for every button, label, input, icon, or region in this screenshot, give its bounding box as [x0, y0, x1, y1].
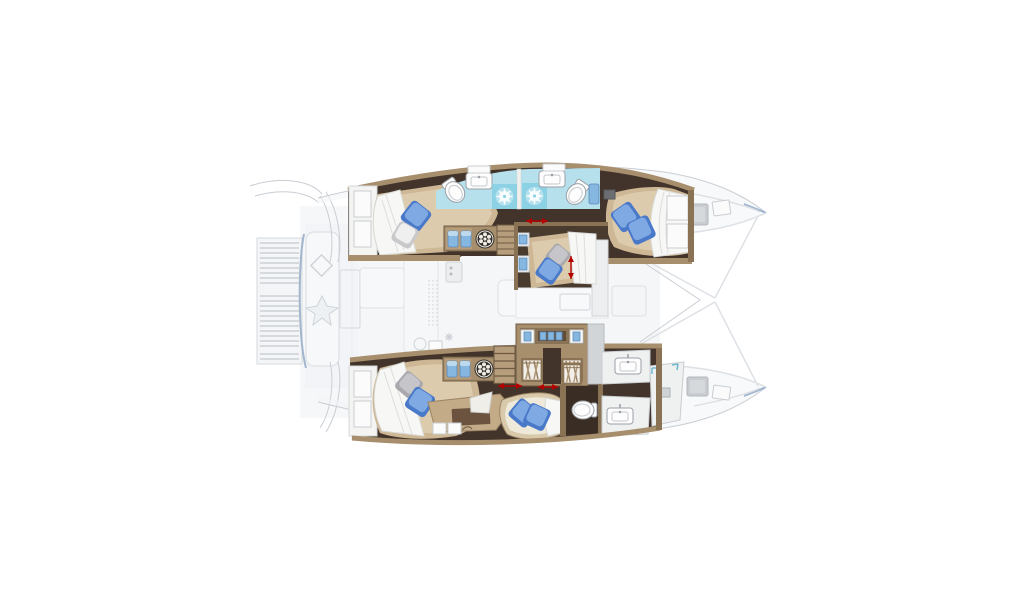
port-companionway-stairs — [494, 346, 515, 384]
towel-icon — [447, 361, 457, 377]
davit-arm — [250, 180, 322, 202]
towel-icon — [460, 361, 470, 377]
shower-drain — [661, 388, 670, 397]
washing-machine-icon — [475, 360, 494, 379]
towel-icon — [448, 231, 458, 247]
drawer — [448, 423, 461, 434]
hanging-locker-icon — [521, 358, 543, 382]
shower-icon — [526, 187, 544, 205]
shower-icon — [496, 188, 514, 206]
blue-locker — [589, 184, 599, 204]
starboard-forward-cabin — [604, 187, 690, 257]
starboard-transom-shelves — [349, 186, 377, 256]
stern-platform — [257, 234, 306, 368]
shelf-item — [524, 332, 531, 341]
hanging-locker-icon — [562, 363, 582, 385]
washing-machine-icon — [476, 230, 495, 249]
port-lounge-berth — [500, 393, 561, 440]
cockpit-bench — [306, 232, 339, 366]
hull-window — [604, 190, 615, 199]
port-utility-cabinet — [443, 357, 497, 381]
center-forward-cabin — [514, 222, 608, 318]
fwd-shelf — [667, 196, 688, 220]
towel-icon — [461, 231, 471, 247]
shelf-item — [519, 235, 527, 244]
fwd-shelf — [667, 224, 688, 248]
floorplan-canvas — [0, 0, 1024, 600]
toilet-icon — [572, 401, 597, 419]
shelf-item — [519, 258, 527, 270]
center-cabin-bed — [527, 232, 596, 288]
catamaran-floorplan — [0, 0, 1024, 600]
starboard-utility-cabinet — [444, 226, 498, 251]
shelf-item — [573, 332, 580, 341]
drawer — [433, 423, 446, 434]
